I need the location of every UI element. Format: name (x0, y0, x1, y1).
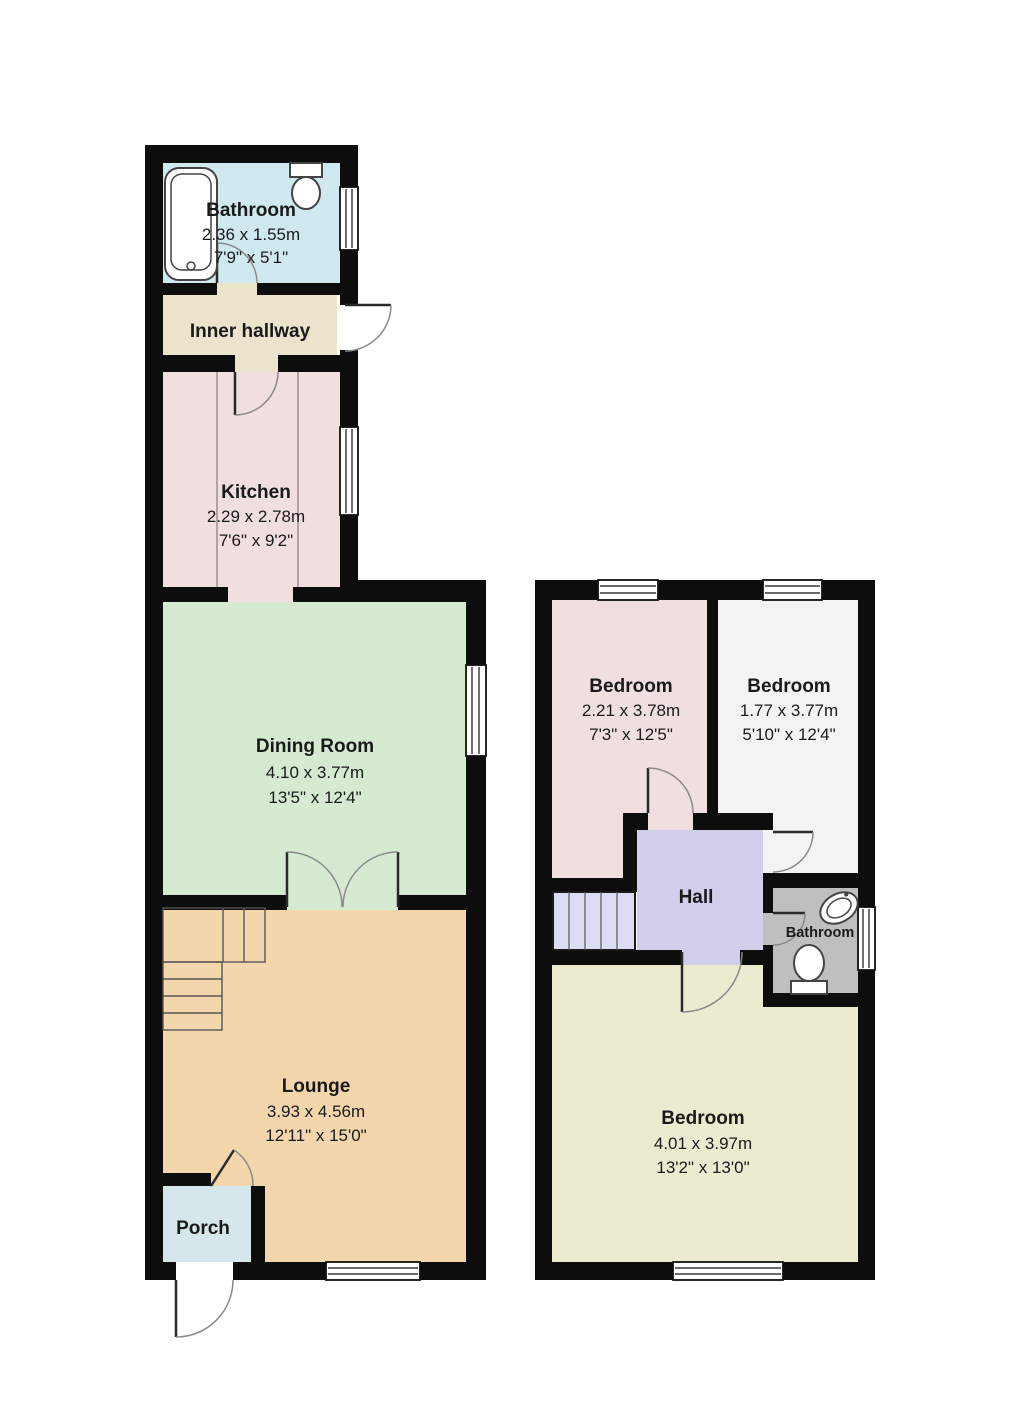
wall (693, 813, 773, 830)
label-bedroom-1-metric: 2.21 x 3.78m (582, 701, 680, 720)
ground-floor: Bathroom 2.36 x 1.55m 7'9" x 5'1" Inner … (145, 145, 486, 1337)
label-bedroom-2-imperial: 5'10" x 12'4" (742, 725, 835, 744)
first-floor: Bedroom 2.21 x 3.78m 7'3" x 12'5" Bedroo… (535, 580, 875, 1280)
wall (278, 355, 340, 372)
window-frame (673, 1262, 783, 1280)
wall (623, 830, 637, 878)
label-kitchen-imperial: 7'6" x 9'2" (219, 531, 293, 550)
window-frame (326, 1262, 420, 1280)
label-bathroom-name: Bathroom (206, 200, 296, 221)
window-frame (763, 580, 822, 600)
wall (763, 873, 875, 888)
wall (340, 580, 486, 602)
label-dining-name: Dining Room (256, 736, 374, 757)
label-bathroom-imperial: 7'9" x 5'1" (214, 248, 288, 267)
wall (535, 580, 552, 1280)
toilet-cistern (791, 981, 827, 994)
label-lounge-metric: 3.93 x 4.56m (267, 1102, 365, 1121)
wall (535, 878, 637, 892)
floorplan-canvas: Bathroom 2.36 x 1.55m 7'9" x 5'1" Inner … (0, 0, 1020, 1423)
label-bedroom-3-metric: 4.01 x 3.97m (654, 1134, 752, 1153)
door-gap-bathroom-first (763, 913, 773, 945)
window-lounge (326, 1262, 420, 1280)
window-bedroom-3 (673, 1262, 783, 1280)
wall (707, 600, 718, 813)
door-gap-front-door (176, 1262, 233, 1280)
wall (535, 580, 875, 600)
label-bathroom-metric: 2.36 x 1.55m (202, 225, 300, 244)
toilet-bowl (292, 177, 320, 209)
label-bathroom-first-name: Bathroom (786, 925, 854, 941)
toilet-bowl (794, 945, 824, 981)
toilet-first (791, 945, 827, 994)
label-hall-name: Hall (679, 887, 714, 908)
wall (163, 283, 217, 295)
window-bathroom (340, 187, 358, 250)
wall (763, 888, 773, 913)
door-gap-bathroom (217, 283, 257, 295)
stair-flight (553, 892, 635, 950)
wall (145, 145, 358, 163)
door-gap-bedroom-1 (648, 813, 693, 830)
door-arc (176, 1280, 233, 1337)
wall (163, 587, 228, 602)
label-lounge-imperial: 12'11" x 15'0" (265, 1126, 366, 1145)
door-gap-kitchen (235, 355, 278, 372)
window-kitchen (340, 427, 358, 515)
label-bedroom-2-name: Bedroom (747, 676, 830, 697)
window-frame (858, 907, 875, 970)
floorplan-page: Bathroom 2.36 x 1.55m 7'9" x 5'1" Inner … (0, 0, 1020, 1423)
label-bedroom-3-imperial: 13'2" x 13'0" (656, 1158, 749, 1177)
wall (398, 895, 486, 910)
window-dining (466, 665, 486, 756)
window-frame (340, 427, 358, 515)
label-porch-name: Porch (176, 1218, 230, 1239)
opening-kitchen-dining (228, 587, 293, 602)
label-kitchen-metric: 2.29 x 2.78m (207, 507, 305, 526)
door-gap-bedroom-2 (763, 830, 773, 873)
wall (163, 355, 235, 372)
toilet-cistern (290, 163, 322, 177)
wall (145, 1173, 211, 1186)
wall (257, 283, 340, 295)
wall (535, 950, 682, 965)
label-bedroom-3-name: Bedroom (661, 1108, 744, 1129)
label-dining-metric: 4.10 x 3.77m (266, 763, 364, 782)
room-bedroom-2-lower (773, 813, 858, 873)
label-bedroom-1-name: Bedroom (589, 676, 672, 697)
window-bedroom-2 (763, 580, 822, 600)
room-bedroom-1-extension (552, 813, 623, 878)
window-bedroom-1 (598, 580, 658, 600)
label-bedroom-2-metric: 1.77 x 3.77m (740, 701, 838, 720)
label-dining-imperial: 13'5" x 12'4" (268, 788, 361, 807)
label-bedroom-1-imperial: 7'3" x 12'5" (589, 725, 673, 744)
staircase-first (553, 892, 635, 950)
label-lounge-name: Lounge (282, 1076, 351, 1097)
door-gap-bedroom-3 (682, 950, 740, 965)
wall (740, 950, 763, 965)
room-kitchen (163, 372, 340, 587)
window-frame (340, 187, 358, 250)
label-inner-hallway-name: Inner hallway (190, 321, 311, 342)
wall (763, 993, 875, 1007)
bathtub-outer (165, 168, 217, 280)
wall (251, 1186, 265, 1266)
label-kitchen-name: Kitchen (221, 482, 291, 503)
window-frame (466, 665, 486, 756)
window-bathroom-first (858, 907, 875, 970)
wall (293, 587, 340, 602)
bathtub (165, 168, 217, 280)
wall (623, 813, 648, 830)
wall (145, 145, 163, 1280)
door-gap-side-entrance (340, 305, 358, 350)
window-frame (598, 580, 658, 600)
door-front-entrance (176, 1280, 233, 1337)
